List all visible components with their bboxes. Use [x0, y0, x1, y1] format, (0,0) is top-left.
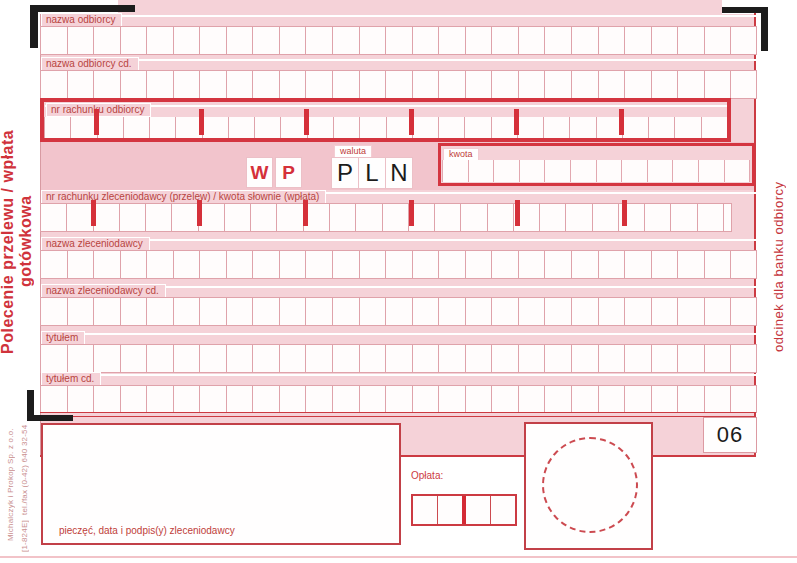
- crop-mark-top-left-v: [30, 5, 38, 48]
- label-payment-title-cont: tytułem cd.: [41, 372, 101, 386]
- field-recipient-account[interactable]: [44, 117, 727, 138]
- account-group-separator-tick: [514, 109, 519, 135]
- band-sender-account: nr rachunku zleceniodawcy (przelew) / kw…: [41, 190, 756, 203]
- stamp-box[interactable]: [524, 422, 653, 550]
- currency-letter-3: N: [390, 159, 407, 187]
- band-recipient-name-cont: nazwa odbiorcy cd.: [41, 57, 756, 70]
- label-sender-name: nazwa zleceniodawcy: [41, 237, 150, 251]
- stamp-placeholder-circle: [542, 437, 638, 533]
- account-group-separator-tick: [619, 109, 624, 135]
- field-payment-title[interactable]: [40, 344, 757, 373]
- account-group-separator-tick: [409, 109, 414, 135]
- label-sender-name-cont: nazwa zleceniodawcy cd.: [41, 284, 166, 298]
- account-group-separator-tick: [409, 200, 414, 226]
- field-amount[interactable]: [442, 160, 750, 182]
- signature-box[interactable]: pieczęć, data i podpis(y) zleceniodawcy: [41, 423, 401, 545]
- band-payment-title-cont: tytułem cd.: [41, 372, 756, 385]
- band-sender-name-cont: nazwa zleceniodawcy cd.: [41, 284, 756, 297]
- separator-line-1: [40, 412, 756, 413]
- band-recipient-name: nazwa odbiorcy: [41, 13, 756, 26]
- label-payment-title: tytułem: [41, 331, 85, 345]
- transfer-form-sheet: nazwa odbiorcy nazwa odbiorcy cd. nr rac…: [0, 0, 797, 563]
- wp-letter-w: W: [251, 162, 269, 184]
- signature-label: pieczęć, data i podpis(y) zleceniodawcy: [59, 525, 235, 536]
- label-recipient-name-cont: nazwa odbiorcy cd.: [41, 57, 139, 71]
- currency-letter-2: L: [365, 159, 378, 187]
- account-group-separator-tick: [622, 200, 627, 226]
- printer-phone: tel./fax (0-42) 640 32-54: [18, 418, 31, 522]
- field-recipient-name-cont[interactable]: [40, 70, 757, 99]
- label-sender-account: nr rachunku zleceniodawcy (przelew) / kw…: [41, 190, 326, 204]
- crop-mark-top-right-v: [761, 7, 768, 51]
- field-recipient-name[interactable]: [40, 26, 757, 55]
- account-group-separator-tick: [304, 109, 309, 135]
- recipient-account-box: nr rachunku odbiorcy: [40, 98, 731, 142]
- fee-cell[interactable]: [438, 496, 466, 524]
- crop-mark-bottom-left-h: [27, 415, 73, 421]
- slip-number: 06: [717, 422, 743, 448]
- printer-name: Michalczyk i Prokop Sp. z o.o.: [4, 418, 17, 552]
- crop-mark-top-left-h: [30, 5, 135, 12]
- fee-box[interactable]: [411, 494, 517, 526]
- currency-value-boxes[interactable]: P L N: [331, 157, 413, 189]
- wp-box-p[interactable]: P: [275, 157, 302, 188]
- fee-cell[interactable]: [466, 496, 491, 524]
- account-group-separator-tick: [199, 109, 204, 135]
- account-group-separator-tick: [94, 109, 99, 135]
- field-payment-title-cont[interactable]: [40, 385, 757, 413]
- band-payment-title: tytułem: [41, 331, 756, 344]
- account-group-separator-tick: [515, 200, 520, 226]
- fee-cell[interactable]: [413, 496, 438, 524]
- slip-number-box: 06: [703, 417, 757, 453]
- account-group-separator-tick: [303, 200, 308, 226]
- account-group-separator-tick: [91, 200, 96, 226]
- field-sender-name-cont[interactable]: [40, 297, 757, 326]
- perforation-line: [0, 556, 797, 558]
- wp-box-w[interactable]: W: [246, 157, 273, 188]
- wp-letter-p: P: [282, 162, 295, 184]
- band-sender-name: nazwa zleceniodawcy: [41, 237, 756, 250]
- field-sender-name[interactable]: [40, 250, 757, 279]
- account-group-separator-tick: [197, 200, 202, 226]
- bank-copy-title-vertical: odcinek dla banku odbiorcy: [766, 112, 790, 422]
- printer-form-code: [1-824E]: [18, 518, 31, 554]
- fee-label: Opłata:: [411, 470, 443, 481]
- label-recipient-name: nazwa odbiorcy: [41, 13, 122, 27]
- separator-line-2: [40, 416, 756, 417]
- fee-cell[interactable]: [491, 496, 515, 524]
- currency-letter-1: P: [337, 159, 353, 187]
- amount-box: kwota: [438, 143, 755, 186]
- form-title-vertical: Polecenie przelewu / wpłata gotówkowa: [4, 88, 30, 395]
- field-sender-account[interactable]: [40, 203, 732, 232]
